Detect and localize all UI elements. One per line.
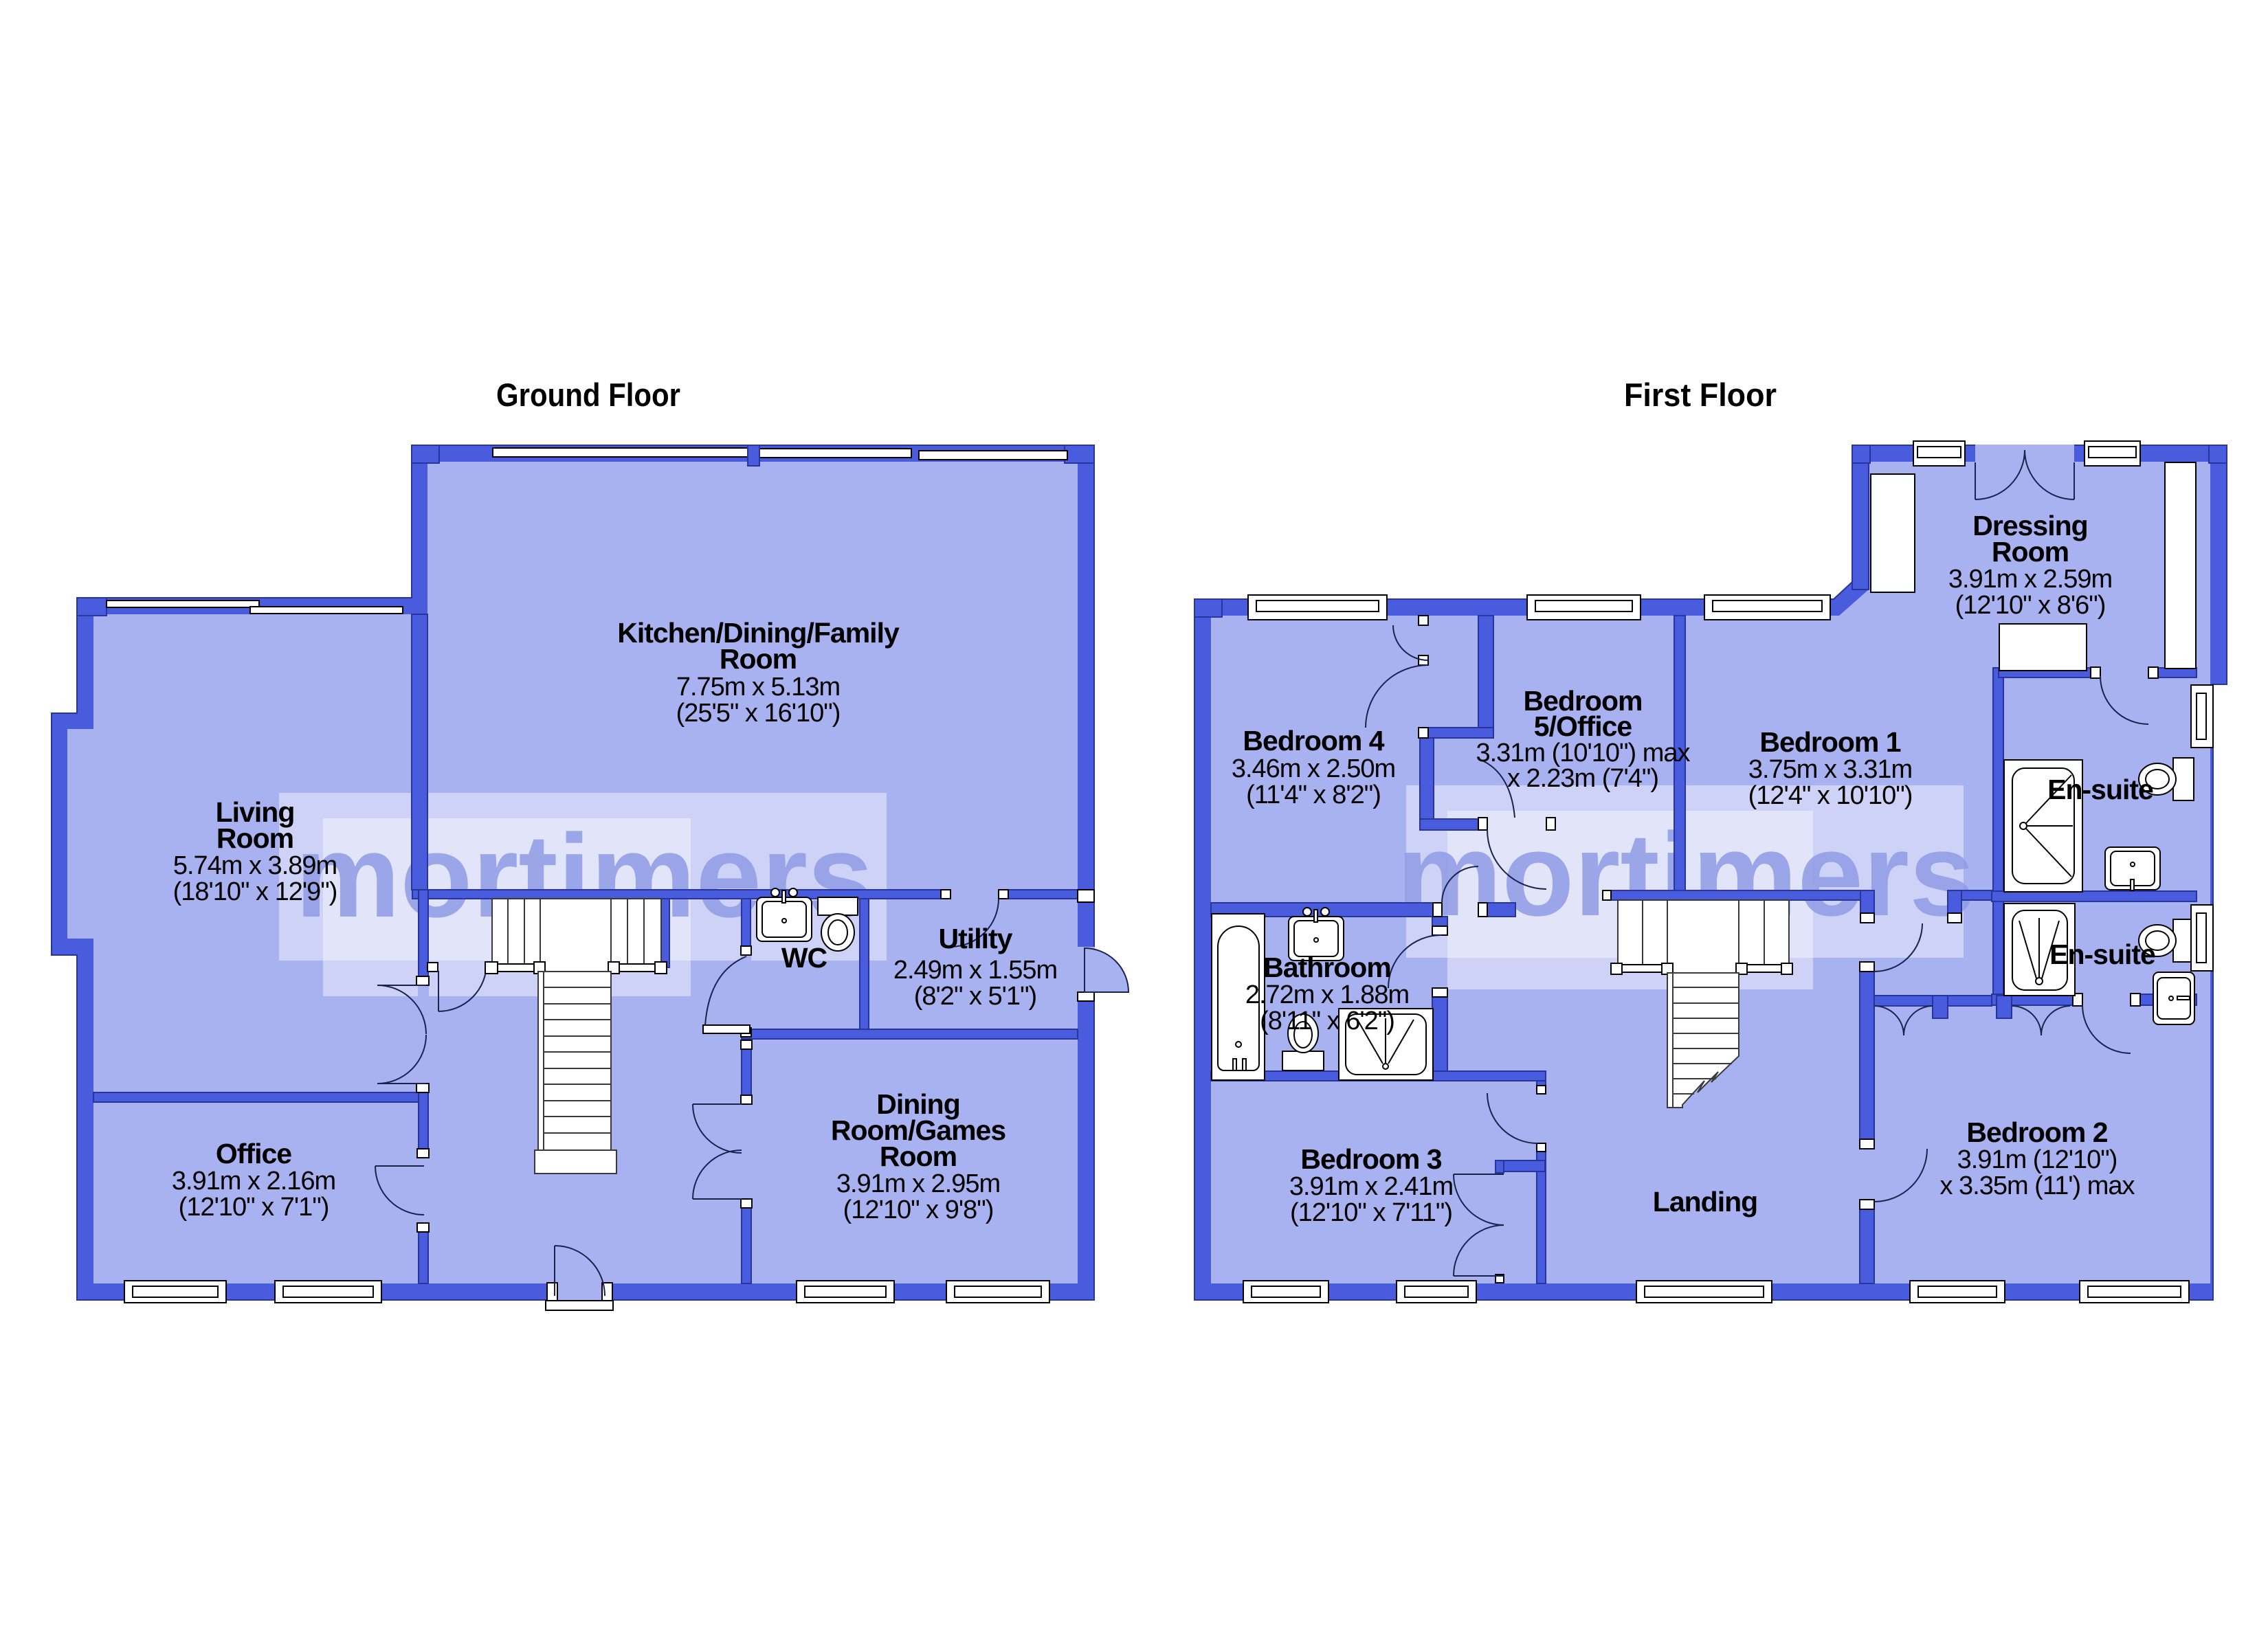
svg-text:3.46m x 2.50m: 3.46m x 2.50m bbox=[1232, 754, 1395, 783]
svg-text:(11'4" x 8'2"): (11'4" x 8'2") bbox=[1246, 781, 1381, 809]
svg-text:Bedroom 3: Bedroom 3 bbox=[1300, 1143, 1441, 1175]
svg-text:En-suite: En-suite bbox=[2049, 939, 2155, 970]
svg-text:Landing: Landing bbox=[1653, 1186, 1757, 1218]
svg-text:3.31m (10'10") max: 3.31m (10'10") max bbox=[1476, 739, 1690, 767]
svg-text:3.91m x 2.16m: 3.91m x 2.16m bbox=[172, 1167, 335, 1196]
svg-text:Room: Room bbox=[880, 1141, 957, 1172]
svg-text:WC: WC bbox=[781, 942, 827, 974]
svg-text:3.75m x 3.31m: 3.75m x 3.31m bbox=[1748, 755, 1912, 784]
svg-text:x 3.35m (11') max: x 3.35m (11') max bbox=[1939, 1171, 2135, 1200]
svg-text:Room: Room bbox=[1992, 536, 2069, 568]
svg-text:(12'10" x 7'1"): (12'10" x 7'1") bbox=[179, 1193, 329, 1222]
svg-text:Room: Room bbox=[720, 643, 797, 675]
svg-text:(8'2" x 5'1"): (8'2" x 5'1") bbox=[914, 982, 1036, 1011]
svg-text:Room: Room bbox=[216, 822, 293, 854]
svg-text:Bedroom 2: Bedroom 2 bbox=[1966, 1117, 2107, 1148]
svg-text:En-suite: En-suite bbox=[2047, 774, 2153, 805]
svg-text:Bedroom 1: Bedroom 1 bbox=[1759, 726, 1900, 758]
svg-text:(12'10" x 8'6"): (12'10" x 8'6") bbox=[1955, 591, 2106, 620]
svg-text:3.91m (12'10"): 3.91m (12'10") bbox=[1957, 1145, 2117, 1174]
svg-text:(12'10" x 7'11"): (12'10" x 7'11") bbox=[1290, 1198, 1452, 1227]
svg-text:(18'10" x 12'9"): (18'10" x 12'9") bbox=[173, 877, 337, 906]
svg-text:7.75m x 5.13m: 7.75m x 5.13m bbox=[676, 673, 840, 702]
svg-text:Bedroom 4: Bedroom 4 bbox=[1243, 725, 1384, 756]
svg-text:Bathroom: Bathroom bbox=[1263, 952, 1391, 983]
svg-text:5/Office: 5/Office bbox=[1534, 710, 1632, 742]
svg-text:5.74m x 3.89m: 5.74m x 3.89m bbox=[173, 851, 337, 880]
svg-text:2.72m x 1.88m: 2.72m x 1.88m bbox=[1245, 980, 1409, 1009]
svg-text:3.91m x 2.95m: 3.91m x 2.95m bbox=[836, 1169, 1000, 1198]
svg-text:(12'10" x 9'8"): (12'10" x 9'8") bbox=[843, 1196, 994, 1224]
svg-text:Ground Floor: Ground Floor bbox=[496, 377, 680, 413]
svg-text:Utility: Utility bbox=[939, 923, 1013, 954]
svg-text:(8'11" x 6'2"): (8'11" x 6'2") bbox=[1260, 1007, 1394, 1035]
svg-text:x 2.23m (7'4"): x 2.23m (7'4") bbox=[1507, 764, 1658, 793]
svg-text:3.91m x 2.59m: 3.91m x 2.59m bbox=[1948, 565, 2112, 594]
svg-text:Office: Office bbox=[216, 1138, 291, 1169]
svg-text:3.91m x 2.41m: 3.91m x 2.41m bbox=[1289, 1172, 1453, 1201]
svg-text:2.49m x 1.55m: 2.49m x 1.55m bbox=[893, 956, 1057, 985]
svg-text:(25'5" x 16'10"): (25'5" x 16'10") bbox=[676, 699, 841, 728]
svg-text:(12'4" x 10'10"): (12'4" x 10'10") bbox=[1748, 781, 1913, 810]
svg-text:First Floor: First Floor bbox=[1624, 377, 1777, 413]
